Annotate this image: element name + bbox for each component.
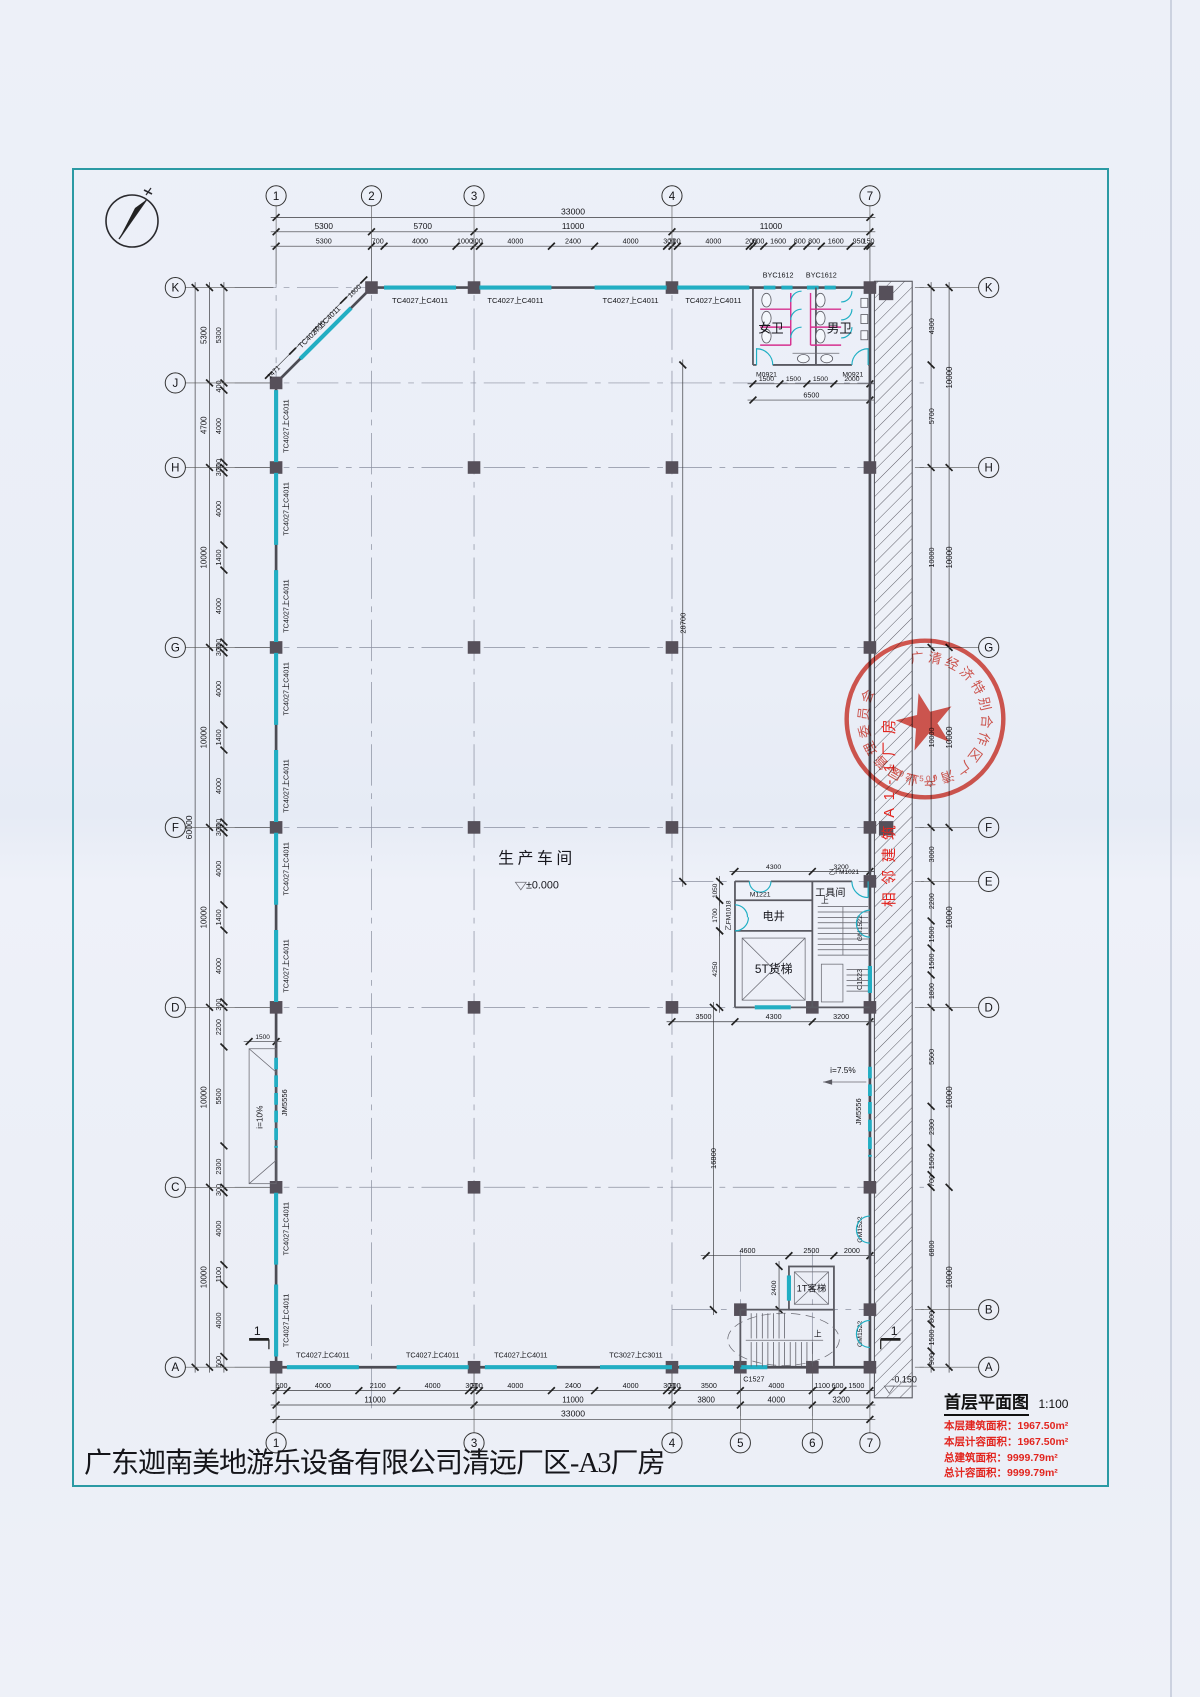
svg-text:2200: 2200 [927,893,936,909]
svg-text:600: 600 [832,1381,844,1390]
svg-text:BYC1612: BYC1612 [763,271,794,280]
svg-text:4000: 4000 [214,1312,223,1328]
svg-text:4000: 4000 [768,1395,786,1404]
svg-text:J: J [172,378,178,390]
grid-bubbles-left: KJHGFDCA [165,277,273,1377]
svg-text:10000: 10000 [200,726,209,749]
svg-text:4300: 4300 [766,864,781,871]
svg-text:TC4027上C4011: TC4027上C4011 [281,939,290,992]
svg-text:1: 1 [891,1324,898,1338]
svg-text:1500: 1500 [255,1034,270,1041]
svg-text:2: 2 [368,191,374,203]
svg-text:11000: 11000 [760,222,783,231]
svg-text:1: 1 [273,191,279,203]
dim-16800: 16800 [709,1002,718,1315]
svg-text:TC4027上C4011: TC4027上C4011 [406,1350,459,1359]
lift-stairs-block: 1T客梯 上 GM1522 GM1522 [728,1216,870,1367]
svg-text:M0921: M0921 [842,372,863,379]
floor-plan-drawing: 33000 530057001100011000 530070040001000… [150,176,1050,1486]
svg-text:400: 400 [214,381,223,393]
svg-text:4000: 4000 [214,501,223,517]
svg-text:33000: 33000 [561,207,585,217]
dim-chain-bottom-total: 33000 [271,1409,876,1423]
svg-text:1100: 1100 [814,1381,829,1390]
svg-text:6500: 6500 [803,390,819,399]
area-note-line: 总建筑面积：9999.79m² [944,1451,1114,1467]
adjacent-building-hatch: 相邻建筑A1-1厂房 [874,281,912,1398]
svg-text:2300: 2300 [927,1119,936,1135]
svg-text:2100: 2100 [370,1381,386,1390]
svg-text:4000: 4000 [412,236,428,245]
workshop-label: 生产车间 ±0.000 [498,849,576,891]
dim-chain-core-d: 350043003200 [667,1012,876,1025]
grid-bubbles-right: KHGFEDBA [915,277,999,1377]
svg-text:10000: 10000 [200,1266,209,1289]
svg-text:上: 上 [814,1330,822,1339]
stamp-star-icon [891,686,960,753]
svg-text:3: 3 [471,191,477,203]
svg-text:1100: 1100 [214,1267,223,1282]
scan-page-edge [1170,0,1172,1697]
svg-text:4: 4 [669,1438,676,1450]
dim-chain-bottom-major: 1100011000380040003200 [271,1395,876,1408]
svg-text:3800: 3800 [697,1395,715,1404]
svg-text:800: 800 [794,236,806,245]
svg-text:1T客梯: 1T客梯 [797,1283,827,1294]
svg-text:TC4027上C4011: TC4027上C4011 [685,296,741,305]
svg-text:A: A [985,1362,993,1374]
svg-text:1500: 1500 [927,1330,936,1346]
svg-text:1500: 1500 [927,1153,936,1169]
svg-text:3200: 3200 [832,1395,850,1404]
svg-text:10000: 10000 [200,906,209,929]
svg-text:600: 600 [275,1381,287,1390]
svg-text:1600: 1600 [828,236,844,245]
svg-text:C1527: C1527 [743,1375,764,1384]
svg-text:7: 7 [867,191,873,203]
svg-text:5: 5 [737,1438,743,1450]
svg-text:D: D [171,1002,179,1014]
svg-text:10000: 10000 [945,546,954,569]
svg-text:M0921: M0921 [756,372,777,379]
svg-text:M1221: M1221 [750,892,771,899]
svg-text:10000: 10000 [945,906,954,929]
area-note-line: 总计容面积：9999.79m² [944,1466,1114,1482]
svg-text:4300: 4300 [766,1012,782,1021]
svg-text:4000: 4000 [315,1381,331,1390]
grid-centerlines [235,246,924,1417]
svg-text:电井: 电井 [763,909,785,923]
svg-text:1500: 1500 [813,376,828,383]
svg-text:11000: 11000 [562,222,585,231]
svg-text:4000: 4000 [214,418,223,434]
svg-text:F: F [172,822,179,834]
dim-28700: 28700 [679,360,688,887]
svg-text:E: E [985,876,993,888]
svg-text:1: 1 [254,1324,261,1338]
svg-text:3000: 3000 [927,846,936,862]
svg-text:33000: 33000 [561,1409,585,1419]
svg-text:乙FM1018: 乙FM1018 [724,900,732,931]
svg-text:16800: 16800 [709,1148,718,1169]
svg-text:5300: 5300 [214,327,223,343]
svg-text:G: G [171,642,180,654]
svg-text:B: B [985,1305,993,1317]
svg-text:TC4027上C4011: TC4027上C4011 [281,1202,290,1255]
svg-text:A: A [171,1362,179,1374]
plan-title: 首层平面图 [944,1393,1029,1416]
svg-text:-0.150: -0.150 [891,1375,916,1385]
svg-text:1400: 1400 [214,549,223,565]
svg-text:3200: 3200 [833,1012,849,1021]
svg-text:2200: 2200 [214,1019,223,1035]
svg-text:800: 800 [808,236,820,245]
svg-text:TC4027上C4011: TC4027上C4011 [281,759,290,812]
svg-text:4: 4 [669,191,676,203]
svg-text:5500: 5500 [214,1088,223,1104]
svg-text:JM5556: JM5556 [280,1089,289,1116]
svg-text:5700: 5700 [414,222,433,231]
svg-text:4000: 4000 [214,778,223,794]
svg-text:TC4027上C4011: TC4027上C4011 [494,1350,547,1359]
svg-text:H: H [171,462,179,474]
dim-chamfer: 1600 4000 1471 [265,277,367,381]
svg-text:4600: 4600 [740,1246,756,1255]
svg-text:女卫: 女卫 [758,321,783,336]
svg-text:±0.000: ±0.000 [526,880,559,892]
svg-text:11000: 11000 [562,1395,584,1404]
svg-text:4000: 4000 [623,1381,639,1390]
svg-text:2000: 2000 [844,1246,860,1255]
svg-text:4000: 4000 [214,958,223,974]
dim-chain-toilet-total: 6500 [748,390,876,403]
svg-text:1700: 1700 [712,908,719,923]
dim-1700: 1700 [712,895,723,936]
svg-text:C1523: C1523 [855,969,864,990]
svg-text:i=7.5%: i=7.5% [830,1066,856,1075]
svg-text:11000: 11000 [364,1395,386,1404]
svg-text:2400: 2400 [565,236,581,245]
dim-4250: 4250 [712,925,723,1012]
left-ramp: i=10% JM5556 [249,1049,289,1184]
svg-text:TC3027上C3011: TC3027上C3011 [609,1350,662,1359]
svg-text:2400: 2400 [771,1280,778,1295]
svg-text:K: K [171,283,179,295]
svg-text:D: D [985,1002,993,1014]
svg-text:TC4027上C4011: TC4027上C4011 [281,482,290,535]
svg-text:2400: 2400 [565,1381,581,1390]
toilet-block: 女卫 男卫 M0921 M0921 [753,288,870,379]
svg-text:3500: 3500 [695,1012,711,1021]
svg-text:6800: 6800 [927,1240,936,1256]
svg-text:10000: 10000 [927,547,936,567]
grid-bubbles-top: 12347 [266,186,880,284]
svg-text:JM5556: JM5556 [854,1098,863,1125]
svg-text:1400: 1400 [214,729,223,745]
svg-text:5300: 5300 [200,326,209,344]
svg-text:TC4027上C4011: TC4027上C4011 [603,296,659,305]
scanned-floor-plan-page: 33000 530057001100011000 530070040001000… [0,0,1200,1697]
svg-text:TC4027上C4011: TC4027上C4011 [281,842,290,895]
svg-text:TC4027上C4011: TC4027上C4011 [281,399,290,452]
drawing-title: 广东迦南美地游乐设备有限公司清远厂区-A3厂房 [84,1441,665,1481]
svg-text:10000: 10000 [200,546,209,569]
svg-text:10000: 10000 [200,1086,209,1109]
svg-text:4700: 4700 [200,416,209,434]
svg-text:i=10%: i=10% [256,1105,265,1129]
svg-text:1600: 1600 [770,236,786,245]
svg-text:2300: 2300 [214,1159,223,1175]
right-ramp-slope: i=7.5% [823,1066,866,1085]
svg-text:4300: 4300 [927,318,936,334]
svg-text:TC4027上C4011: TC4027上C4011 [281,1294,290,1347]
svg-text:700: 700 [372,236,384,245]
dim-chain-top-major: 530057001100011000 [271,222,876,235]
svg-text:TC4027上C4011: TC4027上C4011 [392,296,448,305]
svg-text:1800: 1800 [927,983,936,999]
svg-text:乙FM1021: 乙FM1021 [829,868,860,876]
plan-notes: 首层平面图 1:100 本层建筑面积：1967.50m² 本层计容面积：1967… [944,1388,1114,1482]
svg-text:10000: 10000 [945,1266,954,1289]
svg-text:TC4027上C4011: TC4027上C4011 [281,579,290,632]
svg-text:6: 6 [809,1438,815,1450]
svg-text:1050: 1050 [712,883,719,898]
svg-text:7: 7 [867,1438,873,1450]
svg-text:1500: 1500 [927,953,936,969]
svg-text:4000: 4000 [507,1381,523,1390]
svg-text:TC4027上C4011: TC4027上C4011 [296,1350,349,1359]
core-block: 上 工具间 电井 5T货梯 M1221 乙FM1021 乙FM1018 GM15… [724,868,869,1007]
svg-text:4000: 4000 [214,1221,223,1237]
svg-text:5T货梯: 5T货梯 [755,962,793,976]
svg-text:H: H [985,462,993,474]
svg-text:4000: 4000 [768,1381,784,1390]
section-mark-left: 1 [249,1324,269,1349]
svg-text:28700: 28700 [679,613,688,634]
plan-scale: 1:100 [1038,1397,1068,1411]
svg-text:生产车间: 生产车间 [498,849,576,867]
svg-text:BYC1612: BYC1612 [806,271,837,280]
dim-2400: 2400 [771,1261,782,1315]
svg-text:TC4027上C4011: TC4027上C4011 [281,662,290,715]
svg-text:3500: 3500 [701,1381,717,1390]
svg-text:10000: 10000 [945,366,954,389]
svg-text:5700: 5700 [927,408,936,424]
svg-text:2500: 2500 [803,1246,819,1255]
svg-text:5300: 5300 [316,236,332,245]
svg-text:10000: 10000 [945,1086,954,1109]
svg-text:1500: 1500 [786,376,801,383]
svg-text:1500: 1500 [848,1381,864,1390]
svg-text:4000: 4000 [623,236,639,245]
svg-text:4000: 4000 [705,236,721,245]
area-note-line: 本层建筑面积：1967.50m² [944,1419,1114,1435]
svg-text:5300: 5300 [315,222,334,231]
svg-text:1500: 1500 [927,926,936,942]
dim-chain-lift: 460025002000 [701,1246,876,1259]
svg-text:K: K [985,283,993,295]
svg-text:4000: 4000 [425,1381,441,1390]
svg-text:4000: 4000 [214,681,223,697]
svg-text:4250: 4250 [712,961,719,976]
dim-chain-bottom-detail: 6004000210040003003004000240040003003003… [271,1381,876,1394]
svg-text:工具间: 工具间 [815,886,845,899]
dim-chain-top-detail: 5300700400010003004000240040003003004000… [271,236,876,249]
dim-chain-top-total: 33000 [271,207,876,221]
area-note-line: 本层计容面积：1967.50m² [944,1435,1114,1451]
svg-text:男卫: 男卫 [827,322,852,336]
svg-text:F: F [985,822,992,834]
svg-text:1000: 1000 [457,236,473,245]
svg-text:4000: 4000 [214,861,223,877]
svg-text:4000: 4000 [214,598,223,614]
svg-text:1400: 1400 [214,909,223,925]
svg-text:TC4027上C4011: TC4027上C4011 [487,296,543,305]
svg-text:5500: 5500 [927,1049,936,1065]
svg-text:C: C [171,1182,179,1194]
svg-text:4000: 4000 [507,236,523,245]
svg-text:600: 600 [752,236,764,245]
